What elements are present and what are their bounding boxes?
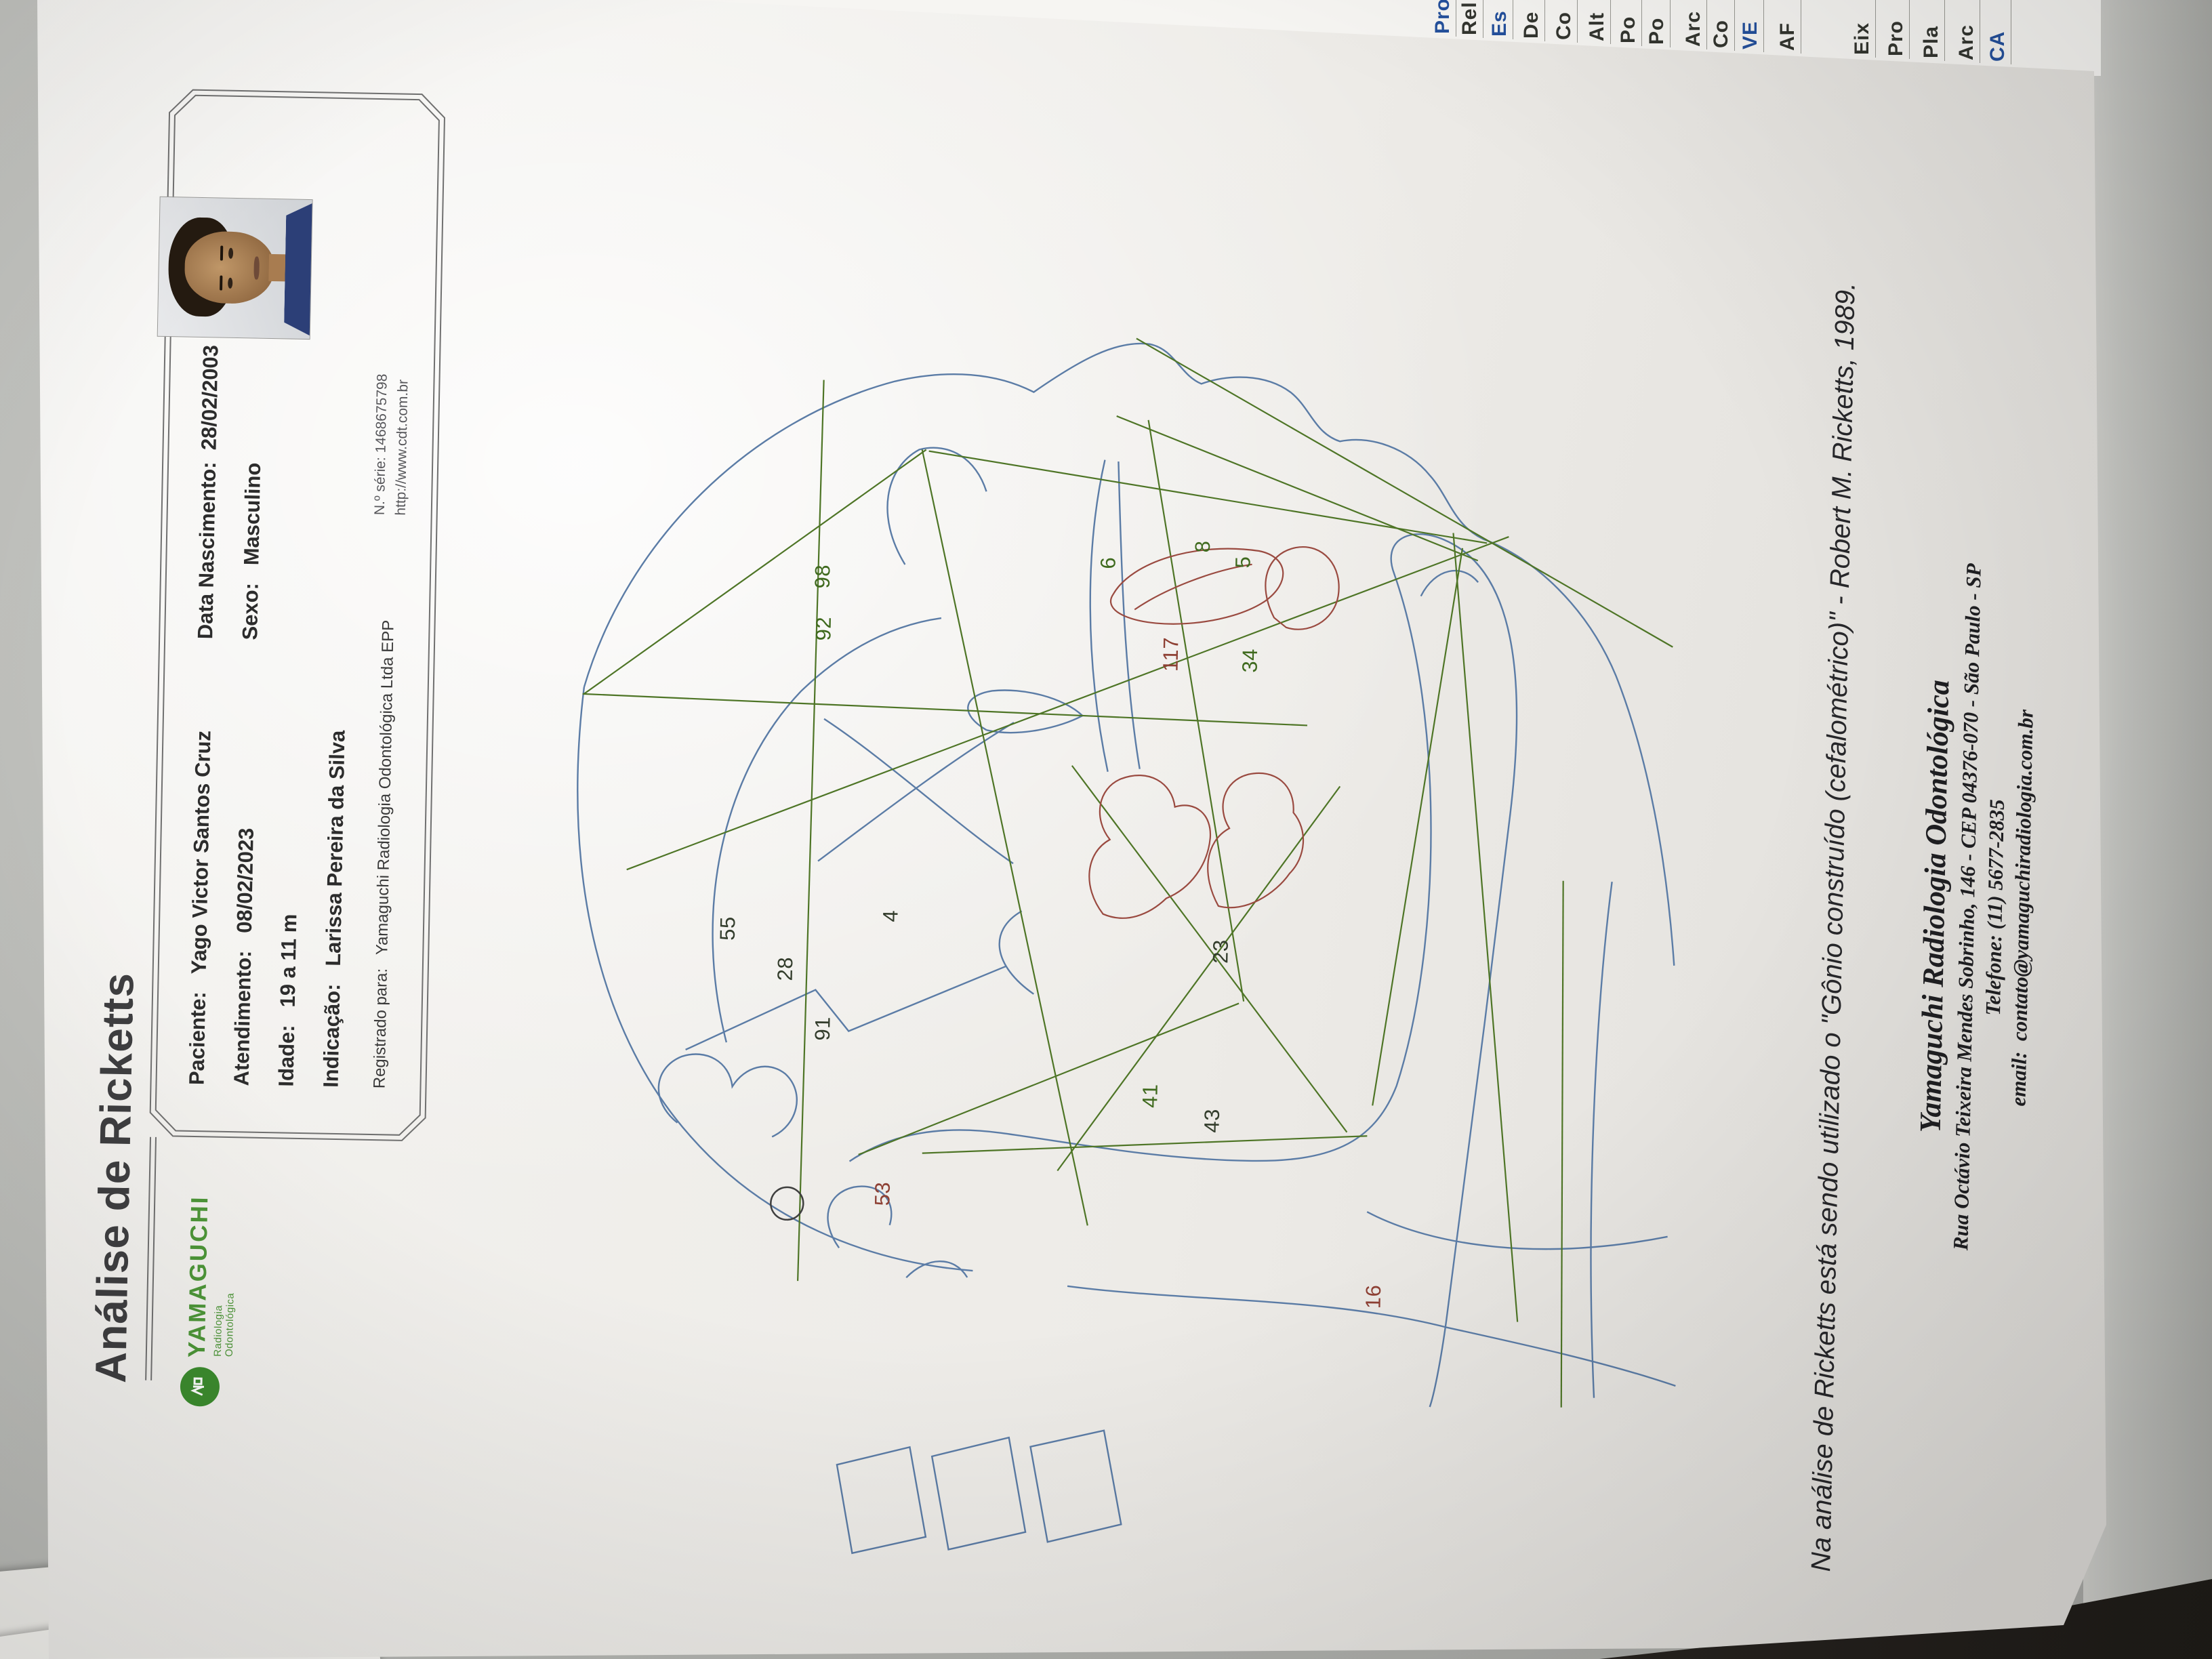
background-page-label: Alt (1586, 12, 1609, 41)
photo-mouth (253, 256, 260, 279)
cdt-url: http://www.cdt.com.br (390, 312, 415, 516)
skull-tracing-blue (563, 333, 1696, 1569)
background-page-label: Po (1617, 16, 1640, 43)
diagram-number: 43 (1200, 1109, 1225, 1133)
paciente-label: Paciente: (185, 991, 211, 1085)
background-page-label: AF (1776, 22, 1799, 51)
indicacao-value: Larissa Pereira da Silva (321, 730, 350, 966)
indicacao-label: Indicação: (319, 983, 344, 1088)
diagram-number: 91 (811, 1017, 836, 1041)
background-table-rule (1875, 0, 1876, 58)
background-table-rule (1577, 0, 1578, 43)
diagram-number: 41 (1138, 1084, 1163, 1108)
background-page-label: Rel (1458, 1, 1481, 35)
background-table-rule (1944, 0, 1945, 61)
background-page-label: Arc (1682, 10, 1705, 46)
diagram-number: 34 (1237, 649, 1263, 673)
clinic-logo-name: YAMAGUCHI (184, 1195, 214, 1357)
background-page-label: Arc (1955, 24, 1978, 60)
background-table-rule (1456, 0, 1456, 37)
diagram-number: 53 (870, 1181, 895, 1206)
background-table-rule (1670, 0, 1671, 47)
diagram-number: 8 (1191, 540, 1215, 552)
photo-brow (220, 275, 222, 290)
background-page-label: Es (1488, 10, 1511, 37)
background-page-label: CA (1986, 31, 2009, 62)
atendimento-label: Atendimento: (229, 950, 255, 1086)
paciente-value: Yago Victor Santos Cruz (187, 731, 216, 975)
registrado-label: Registrado para: (370, 968, 390, 1089)
photo-eye (228, 248, 233, 259)
measurement-lines-green (569, 328, 1679, 1410)
diagram-number: 28 (773, 957, 798, 981)
background-table-rule (1513, 0, 1513, 39)
background-table-rule (1909, 0, 1910, 59)
serial-value: 1468675798 (373, 373, 390, 453)
diagram-number: 16 (1361, 1284, 1386, 1309)
rotated-document: Análise de Ricketts YAMAGUCHI Radiologia… (31, 33, 2127, 1624)
page-title: Análise de Ricketts (85, 972, 144, 1383)
photographed-scene: ProRelEsDeCoAltPoPoArcCoVEAFEixProPlaArc… (0, 0, 2212, 1659)
background-page-label: Pro (1431, 0, 1454, 34)
diagram-number: 6 (1096, 557, 1120, 569)
background-page-label: VE (1739, 21, 1762, 49)
background-page-label: Po (1645, 17, 1668, 44)
diagram-number: 98 (811, 565, 836, 589)
background-table-rule (1706, 0, 1707, 49)
clinic-logo-subtitle: Radiologia Odontológica (212, 1292, 237, 1357)
sexo-value: Masculino (239, 462, 265, 565)
diagram-number: 92 (811, 617, 836, 641)
nascimento-value: 28/02/2003 (197, 345, 222, 451)
patient-photo (157, 197, 313, 340)
background-table-rule (1734, 0, 1735, 51)
email-label: email: (2006, 1051, 2031, 1107)
photo-shirt (284, 202, 313, 336)
email-value: contato@yamaguchiradiologia.com.br (2007, 710, 2037, 1042)
background-table-rule (1610, 0, 1611, 44)
background-table-rule (1763, 0, 1764, 52)
diagram-number: 23 (1208, 939, 1233, 964)
phone-label: Telefone: (1981, 935, 2006, 1016)
nascimento-label: Data Nascimento: (193, 462, 220, 639)
idade-label: Idade: (274, 1025, 299, 1087)
photo-face (184, 231, 275, 305)
field-atendimento: Atendimento: 08/02/2023 (229, 827, 258, 1086)
background-page-label: De (1520, 11, 1543, 38)
diagram-number: 5 (1231, 556, 1255, 568)
background-page-label: Pro (1885, 20, 1908, 56)
diagram-number: 4 (878, 909, 903, 922)
ricketts-report: Análise de Ricketts YAMAGUCHI Radiologia… (31, 33, 2127, 1624)
serial-label: N.º série: (372, 457, 389, 515)
background-table-rule (1980, 0, 1980, 63)
serial-block: N.º série: 1468675798 http://www.cdt.com… (369, 312, 415, 516)
field-idade: Idade: 19 a 11 m (274, 914, 302, 1087)
background-table-rule (1544, 0, 1545, 41)
diagram-number: 117 (1158, 637, 1183, 672)
background-table-rule (1641, 0, 1642, 46)
phone-value: (11) 5677-2835 (1982, 799, 2009, 930)
idade-value: 19 a 11 m (276, 914, 302, 1008)
photo-eye (228, 278, 232, 289)
background-page-label: Co (1553, 12, 1576, 40)
background-page-label: Eix (1851, 22, 1874, 55)
background-table-rule (2011, 0, 2011, 64)
field-sexo: Sexo: Masculino (238, 462, 266, 640)
sexo-label: Sexo: (238, 583, 263, 640)
atendimento-value: 08/02/2023 (232, 827, 258, 933)
background-page-label: Co (1710, 20, 1733, 48)
background-table-rule (1483, 0, 1483, 38)
photo-brow (220, 246, 223, 261)
background-page-label: Pla (1920, 26, 1943, 58)
diagram-number: 55 (716, 916, 741, 941)
background-table-rule (1801, 0, 1801, 54)
teeth-tracing-red (1088, 543, 1340, 922)
